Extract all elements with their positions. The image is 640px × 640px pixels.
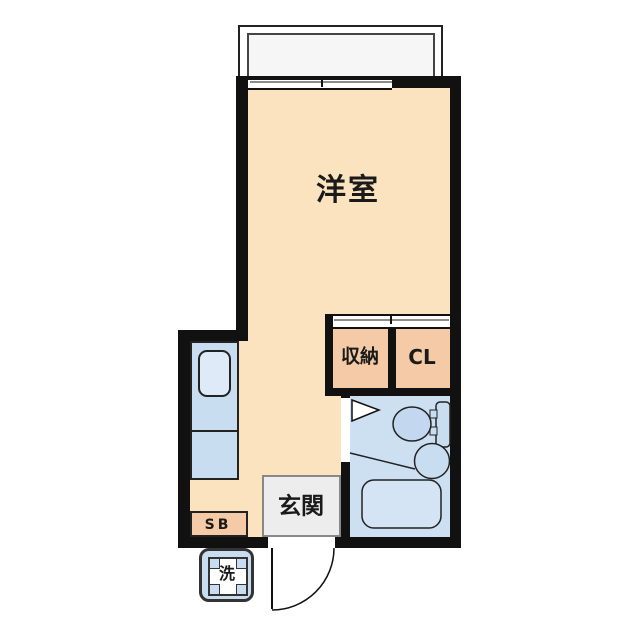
counter-divider (192, 430, 237, 432)
wall-left-lower (178, 330, 190, 548)
washer-corner-tab (236, 558, 247, 569)
bath-left-wall-lower (341, 462, 350, 537)
cl-label: CL (408, 347, 435, 367)
entrance-label: 玄関 (278, 496, 324, 519)
mid-floor (248, 314, 325, 396)
entrance-door-opening (268, 537, 335, 548)
washer-label: 洗 (219, 566, 235, 582)
kitchen-sink (198, 350, 231, 397)
washer-corner-tab (236, 584, 247, 595)
shoebox-label: SB (205, 518, 232, 532)
bath-left-wall-upper (341, 388, 350, 398)
storage-label: 収納 (341, 348, 379, 367)
wall-right (450, 76, 461, 548)
bathroom-floor (350, 396, 450, 537)
washer-corner-tab (209, 584, 220, 595)
closet-sliding-door (333, 314, 450, 329)
main-room-label: 洋室 (316, 176, 380, 206)
entrance-door-arc (272, 548, 334, 610)
closet-left-wall (325, 314, 333, 396)
window-slider (248, 78, 392, 90)
floor-plan: 洋室 収納 CL 玄関 SB 洗 (0, 0, 640, 640)
wall-left-upper (236, 76, 248, 341)
bathroom-door-opening (341, 398, 350, 462)
